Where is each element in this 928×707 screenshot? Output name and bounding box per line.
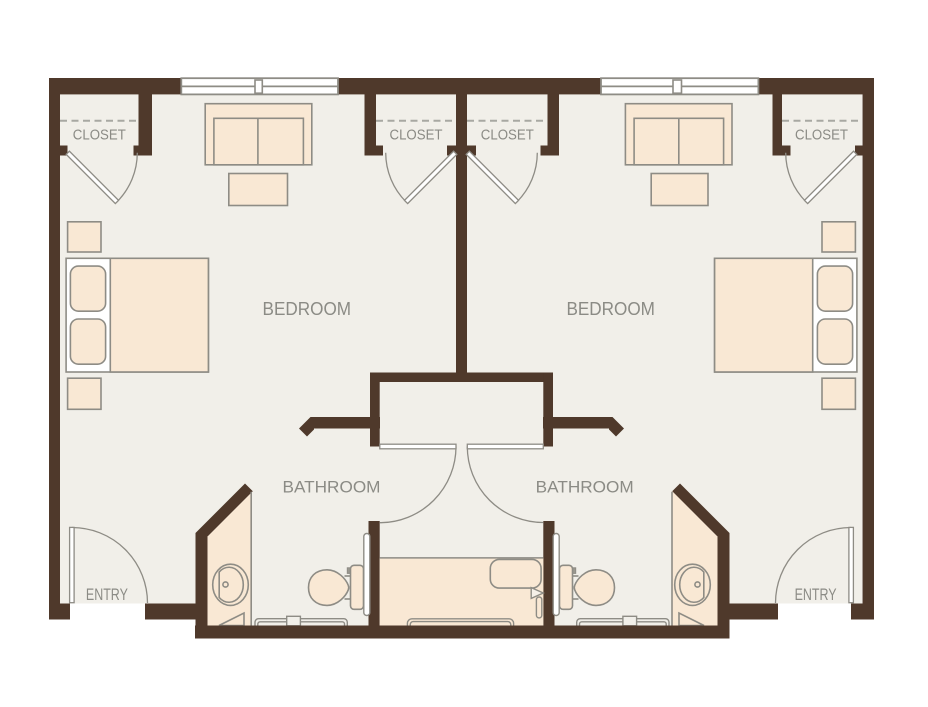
svg-text:BATHROOM: BATHROOM [283,477,381,496]
svg-text:BEDROOM: BEDROOM [566,299,655,320]
svg-text:CLOSET: CLOSET [73,128,126,144]
svg-text:CLOSET: CLOSET [390,128,443,144]
svg-text:CLOSET: CLOSET [481,128,534,144]
svg-text:BEDROOM: BEDROOM [263,299,352,320]
svg-text:ENTRY: ENTRY [795,585,837,604]
svg-text:BATHROOM: BATHROOM [536,477,634,496]
svg-text:ENTRY: ENTRY [86,585,128,604]
svg-text:CLOSET: CLOSET [795,128,848,144]
